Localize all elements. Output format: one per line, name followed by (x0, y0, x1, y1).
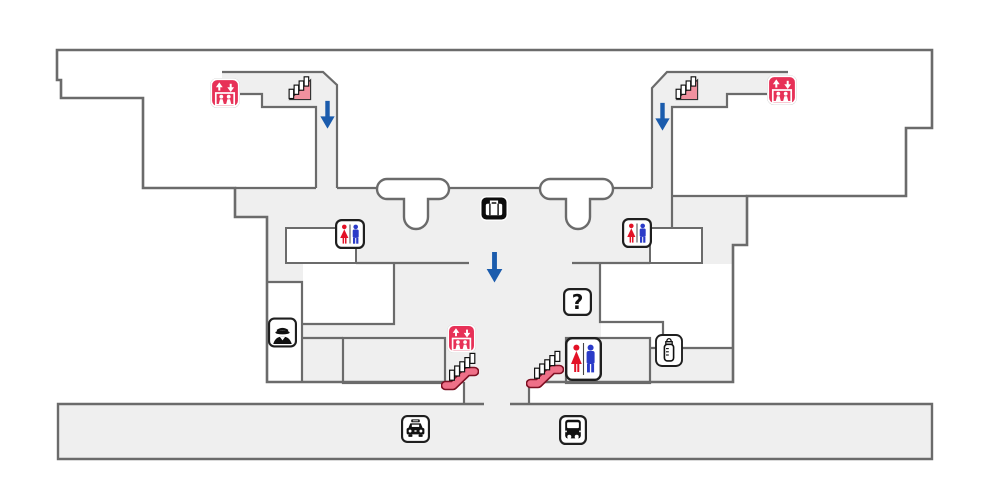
alcove-east (650, 228, 702, 263)
terminal-map: ? (0, 0, 1000, 497)
toilet-central-icon (566, 338, 601, 380)
baggage-claim-icon (481, 197, 507, 220)
room-lower-west (343, 338, 445, 383)
elevator-northeast-icon (767, 75, 796, 104)
curbside-strip-floor (58, 404, 932, 459)
room-west-large (303, 264, 393, 323)
toilet-northwest-icon (336, 220, 364, 248)
taxi-stand-icon (402, 416, 429, 442)
toilet-northeast-icon (623, 219, 651, 247)
elevator-center-icon (447, 324, 475, 352)
police-icon (269, 319, 296, 347)
terminal-map-canvas: ? (0, 0, 1000, 497)
bus-stop-icon (560, 416, 586, 444)
information-icon (564, 289, 591, 315)
elevator-northwest-icon (210, 78, 239, 107)
nursing-room-icon (656, 335, 682, 366)
